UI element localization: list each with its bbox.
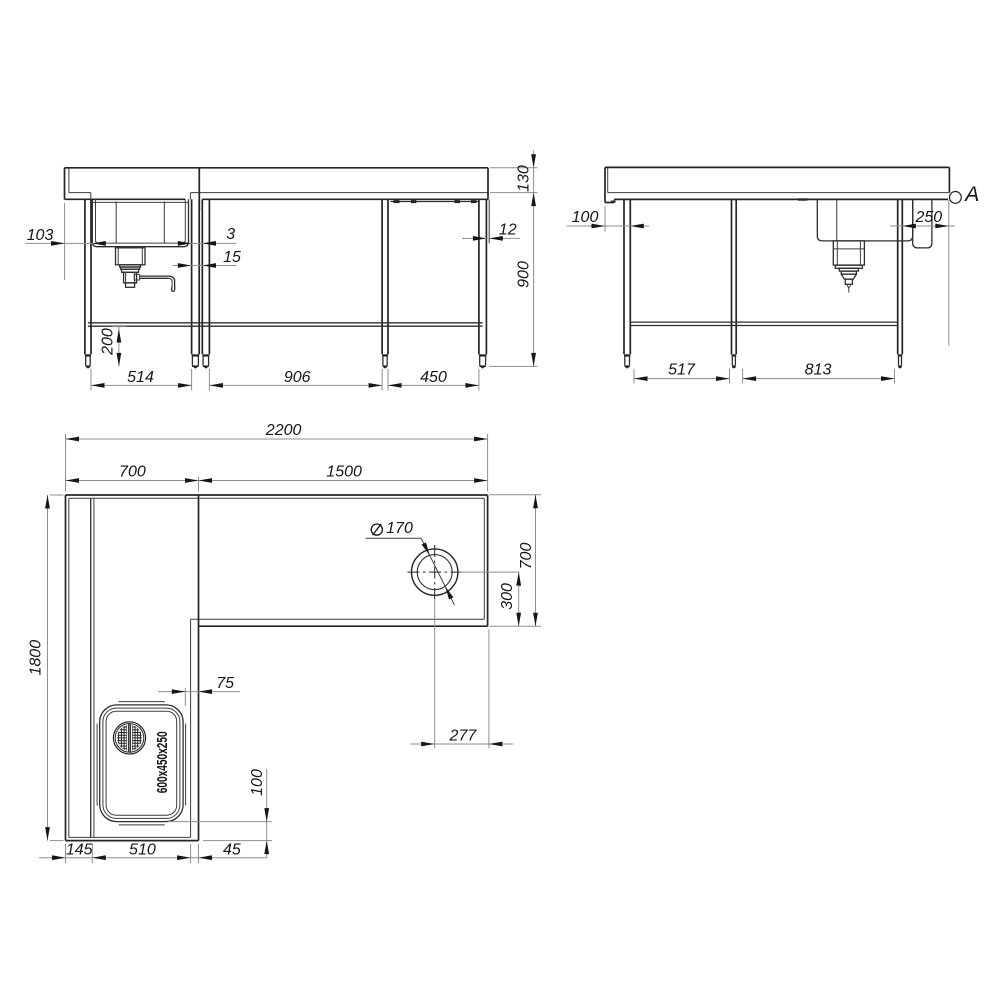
svg-text:45: 45 (223, 842, 241, 859)
svg-text:A: A (963, 183, 979, 206)
svg-text:1500: 1500 (326, 464, 362, 481)
svg-text:300: 300 (499, 583, 516, 610)
svg-text:2200: 2200 (265, 422, 302, 439)
svg-text:450: 450 (420, 369, 447, 386)
svg-text:517: 517 (668, 362, 696, 379)
svg-text:100: 100 (572, 209, 599, 226)
svg-text:250: 250 (914, 209, 942, 226)
svg-text:906: 906 (284, 369, 311, 386)
svg-text:277: 277 (449, 727, 478, 744)
svg-text:900: 900 (516, 261, 533, 288)
svg-text:813: 813 (805, 362, 832, 379)
svg-text:170: 170 (386, 520, 413, 537)
svg-text:103: 103 (27, 227, 54, 244)
svg-text:700: 700 (119, 464, 146, 481)
svg-text:130: 130 (515, 165, 532, 192)
svg-text:145: 145 (66, 842, 93, 859)
svg-text:200: 200 (100, 328, 117, 356)
svg-text:100: 100 (249, 769, 266, 796)
svg-text:1800: 1800 (28, 640, 45, 676)
svg-text:3: 3 (226, 226, 235, 243)
svg-text:15: 15 (223, 249, 241, 266)
svg-text:600x450x250: 600x450x250 (154, 731, 171, 793)
svg-text:510: 510 (129, 842, 156, 859)
svg-text:12: 12 (499, 221, 517, 238)
svg-text:700: 700 (518, 543, 535, 570)
svg-text:514: 514 (127, 369, 154, 386)
svg-text:75: 75 (216, 675, 234, 692)
